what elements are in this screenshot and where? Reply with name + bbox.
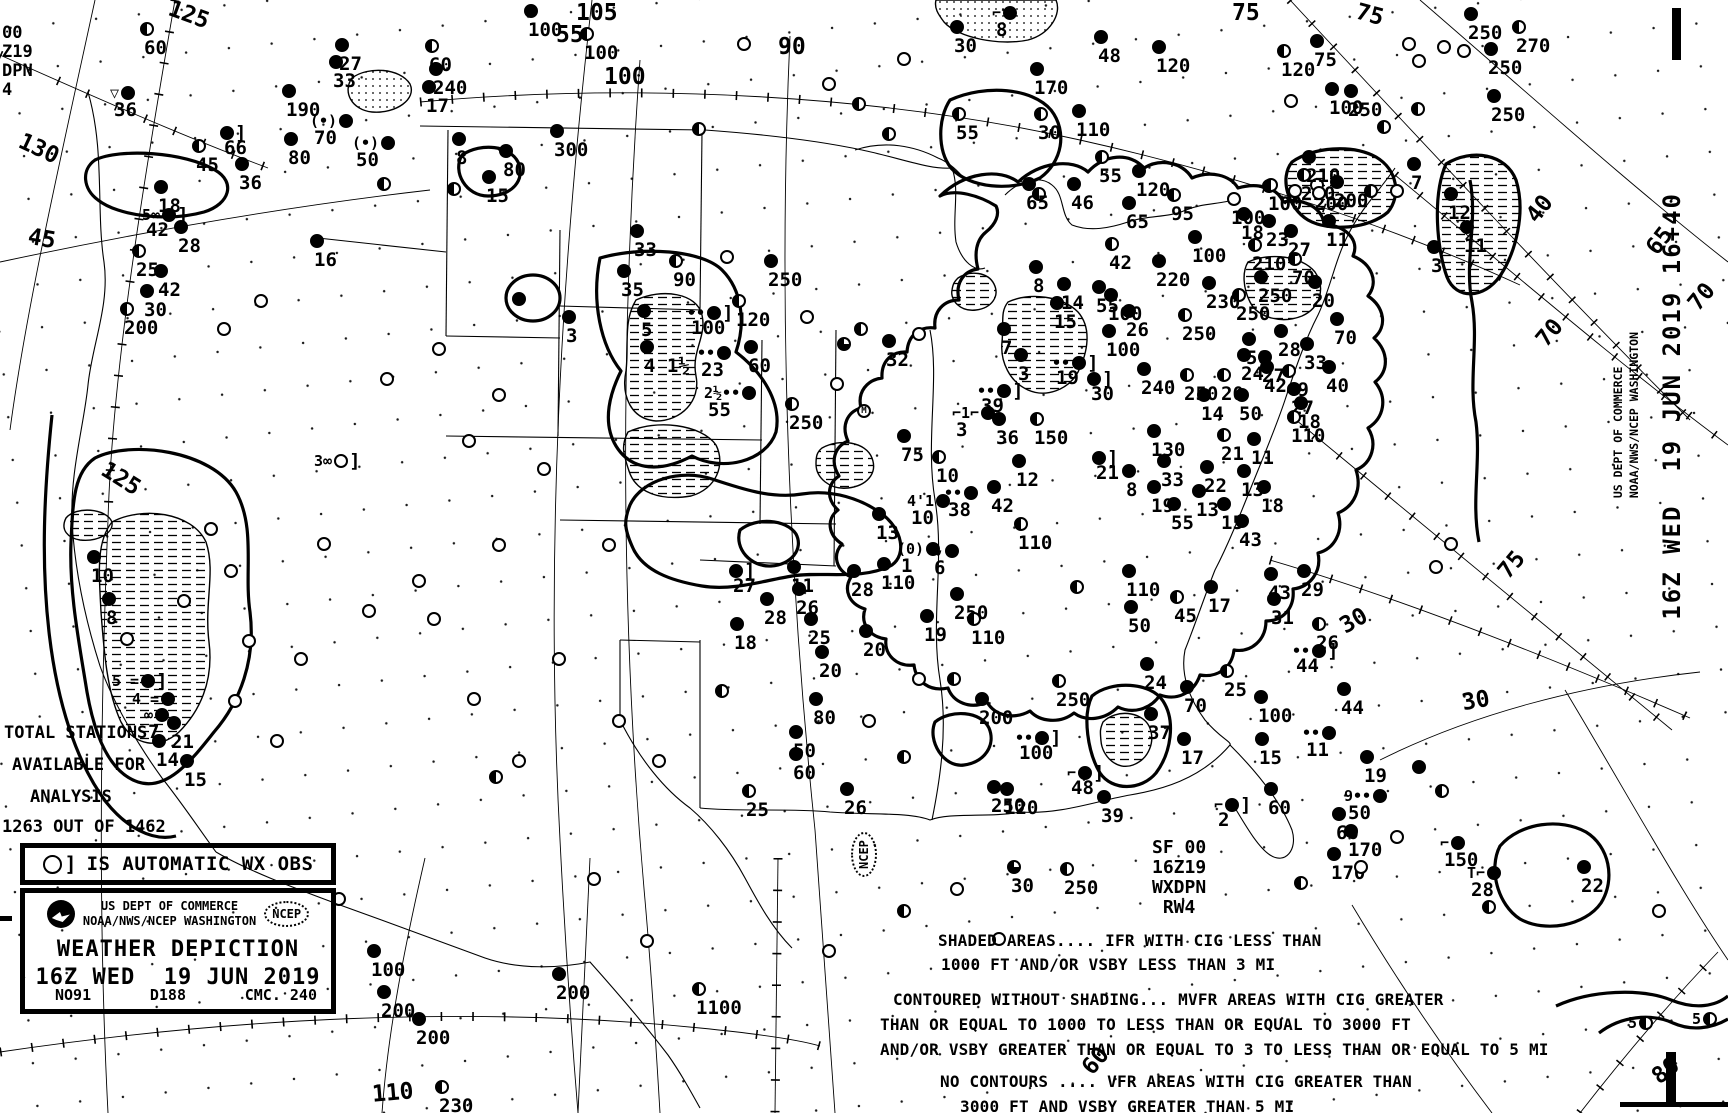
sky-cover-icon — [1124, 600, 1138, 614]
sky-cover-icon — [950, 882, 964, 896]
sky-cover-icon — [1060, 862, 1074, 876]
station-id-block-topleft: 00Z19DPN4 — [2, 24, 33, 100]
station-value: 250 — [1064, 877, 1098, 899]
sky-cover-icon — [492, 388, 506, 402]
sky-cover-icon — [1267, 592, 1281, 606]
sky-cover-icon — [1337, 682, 1351, 696]
station-value: 110 — [1076, 119, 1110, 141]
station-value: 100 — [1192, 245, 1226, 267]
sky-cover-icon — [1147, 424, 1161, 438]
sky-cover-icon — [760, 592, 774, 606]
station-value: 33 — [1161, 469, 1184, 491]
station-value: 200 — [556, 982, 590, 1004]
sky-cover-icon — [217, 322, 231, 336]
station-value: 70 — [1334, 327, 1357, 349]
sky-cover-icon — [427, 612, 441, 626]
station-value: 55 — [1099, 165, 1122, 187]
station-value: 42 — [1264, 375, 1287, 397]
station-value: 1100 — [696, 997, 742, 1019]
station-value: 80 — [813, 707, 836, 729]
sky-cover-icon — [1003, 6, 1017, 20]
sky-cover-icon — [1204, 580, 1218, 594]
station-value: 120 — [1156, 55, 1190, 77]
station-value: 12 — [1016, 469, 1039, 491]
station-value: 15 — [486, 185, 509, 207]
station-value: 2 — [1218, 809, 1229, 831]
station-value: 16 — [314, 249, 337, 271]
sky-cover-icon — [552, 967, 566, 981]
sky-cover-icon — [1308, 275, 1322, 289]
sky-cover-icon — [1451, 836, 1465, 850]
sky-cover-icon — [815, 645, 829, 659]
sky-cover-icon — [1460, 220, 1474, 234]
margin-datetime-vertical: 16Z WED 19 JUN 2019 16+40 — [1658, 192, 1686, 620]
sky-cover-icon — [120, 632, 134, 646]
station-value: 230 — [439, 1095, 473, 1113]
station-value: 7 — [1411, 172, 1422, 194]
graticule-label: 75 — [1232, 0, 1260, 26]
sky-cover-icon — [177, 594, 191, 608]
sky-cover-icon — [652, 754, 666, 768]
station-value: 17 — [1181, 747, 1204, 769]
sky-cover-icon — [412, 574, 426, 588]
station-value: 100 — [584, 42, 618, 64]
station-value: 22 — [1581, 875, 1604, 897]
station-value: 100 — [371, 959, 405, 981]
sky-cover-icon — [1264, 178, 1278, 192]
station-value: 27 — [1288, 239, 1311, 261]
sky-cover-icon — [1412, 54, 1426, 68]
graticule-label: 45 — [26, 224, 58, 254]
sky-cover-icon — [1330, 175, 1344, 189]
sky-cover-icon — [1512, 20, 1526, 34]
sky-cover-icon — [1235, 514, 1249, 528]
sky-cover-icon — [310, 234, 324, 248]
sky-cover-icon — [1177, 732, 1191, 746]
sky-cover-icon — [192, 139, 206, 153]
auto-obs-bracket: ] — [349, 450, 360, 472]
sky-cover-icon — [447, 182, 461, 196]
registration-rule-bottom-right — [1620, 1102, 1728, 1107]
station-value: 100 — [1258, 705, 1292, 727]
station-value: 25 — [746, 799, 769, 821]
noaa-logo — [47, 900, 75, 928]
station-value: 13 — [876, 522, 899, 544]
station-value: 40 — [1326, 375, 1349, 397]
chart-note-line: 3000 FT AND VSBY GREATER THAN 5 MI — [960, 1097, 1294, 1113]
sky-cover-icon — [1095, 150, 1109, 164]
auto-obs-bracket: ] — [1327, 640, 1338, 662]
sky-cover-icon — [837, 337, 851, 351]
sky-cover-icon — [412, 1012, 426, 1026]
sky-cover-icon — [1262, 214, 1276, 228]
sky-cover-icon — [1377, 120, 1391, 134]
station-value: 110 — [1291, 425, 1325, 447]
sky-cover-icon — [669, 254, 683, 268]
sky-cover-icon — [429, 62, 443, 76]
station-value: 15 — [1054, 311, 1077, 333]
sky-cover-icon — [997, 322, 1011, 336]
sky-cover-icon — [637, 304, 651, 318]
sky-cover-icon — [1482, 900, 1496, 914]
weather-symbol: 5 — [1628, 1014, 1637, 1032]
station-value: 28 — [1278, 339, 1301, 361]
sky-cover-icon — [732, 294, 746, 308]
graticule-label: 90 — [778, 34, 806, 60]
station-value: 48 — [1071, 777, 1094, 799]
sky-cover-icon — [1435, 784, 1449, 798]
sky-cover-icon — [717, 346, 731, 360]
sky-cover-icon — [1302, 150, 1316, 164]
station-value: 100 — [1106, 339, 1140, 361]
sky-cover-icon — [1029, 260, 1043, 274]
station-value: 270 — [1516, 35, 1550, 57]
station-value: 100 — [691, 317, 725, 339]
station-value: 90 — [673, 269, 696, 291]
station-value: 100 — [528, 19, 562, 41]
sky-cover-icon — [1072, 104, 1086, 118]
sky-cover-icon — [1487, 89, 1501, 103]
weather-symbol: 5 = — [112, 672, 139, 690]
station-value: 95 — [1171, 203, 1194, 225]
sky-cover-icon — [1287, 410, 1301, 424]
sky-cover-icon — [882, 334, 896, 348]
sky-cover-icon — [1390, 184, 1404, 198]
sky-cover-icon — [967, 612, 981, 626]
station-value: 20 — [1221, 383, 1244, 405]
sky-cover-icon — [1277, 44, 1291, 58]
sky-cover-icon — [947, 672, 961, 686]
footer-left: NO91 — [55, 986, 91, 1004]
sky-cover-icon — [1703, 1012, 1717, 1026]
sky-cover-icon — [692, 122, 706, 136]
chart-title: WEATHER DEPICTION — [25, 937, 331, 962]
station-value: 250 — [1488, 57, 1522, 79]
sky-cover-icon — [692, 982, 706, 996]
sky-cover-icon — [1484, 42, 1498, 56]
station-value: 17 — [426, 95, 449, 117]
sky-cover-icon — [1457, 44, 1471, 58]
station-value: 80 — [288, 147, 311, 169]
sky-cover-icon — [1373, 789, 1387, 803]
sky-cover-icon — [1327, 847, 1341, 861]
station-value: 66 — [224, 137, 247, 159]
sky-cover-icon — [1260, 360, 1274, 374]
station-value: 110 — [1126, 579, 1160, 601]
chart-note-line: THAN OR EQUAL TO 1000 TO LESS THAN OR EQ… — [880, 1015, 1411, 1034]
station-value: 65 — [1026, 192, 1049, 214]
sky-cover-icon — [1237, 348, 1251, 362]
sky-cover-icon — [897, 750, 911, 764]
sky-cover-icon — [1137, 362, 1151, 376]
station-value: 170 — [1034, 77, 1068, 99]
sky-cover-icon — [1325, 82, 1339, 96]
station-value: 19 — [1364, 765, 1387, 787]
sky-cover-icon — [154, 264, 168, 278]
footer-right: CMC. 240 — [245, 986, 317, 1004]
sky-cover-icon — [950, 20, 964, 34]
auto-obs-bracket: ] — [1240, 794, 1251, 816]
station-value: 11 — [1464, 235, 1487, 257]
station-value: 50 — [1128, 615, 1151, 637]
sky-cover-icon — [512, 292, 526, 306]
sky-cover-icon — [1105, 237, 1119, 251]
sky-cover-icon — [897, 429, 911, 443]
sky-cover-icon — [1102, 324, 1116, 338]
sky-cover-icon — [580, 27, 594, 41]
station-value: 3 — [566, 325, 577, 347]
sky-cover-icon — [489, 770, 503, 784]
sky-cover-icon — [1180, 368, 1194, 382]
auto-obs-bracket: ] — [1093, 762, 1104, 784]
sky-cover-icon — [630, 224, 644, 238]
sky-cover-icon — [1147, 480, 1161, 494]
sky-cover-icon — [284, 132, 298, 146]
station-value: 42 — [158, 279, 181, 301]
sky-cover-icon — [381, 136, 395, 150]
station-value: 28 — [178, 235, 201, 257]
station-value: 6 — [934, 557, 945, 579]
sky-cover-icon — [1167, 497, 1181, 511]
sky-cover-icon — [897, 52, 911, 66]
station-value: 46 — [1071, 192, 1094, 214]
station-value: 45 — [196, 154, 219, 176]
sky-cover-icon — [1330, 312, 1344, 326]
title-legend-box: US DEPT OF COMMERCE NOAA/NWS/NCEP WASHIN… — [20, 888, 336, 1014]
sky-cover-icon — [764, 254, 778, 268]
station-value: 19 — [1056, 367, 1079, 389]
station-value: 10 — [911, 507, 934, 529]
chart-note-line: 1000 FT AND/OR VSBY LESS THAN 3 MI — [941, 955, 1275, 974]
sky-cover-icon — [804, 612, 818, 626]
station-value: 3 — [1018, 363, 1029, 385]
station-value: 44 — [1296, 655, 1319, 677]
chart-note-line: SHADED AREAS.... IFR WITH CIG LESS THAN — [938, 931, 1321, 950]
station-value: 28 — [764, 607, 787, 629]
sky-cover-icon — [512, 754, 526, 768]
station-value: 10 — [91, 565, 114, 587]
sky-cover-icon — [1217, 497, 1231, 511]
sky-cover-icon — [1122, 196, 1136, 210]
sky-cover-icon — [830, 377, 844, 391]
station-value: 55 — [708, 399, 731, 421]
sky-cover-icon — [1220, 664, 1234, 678]
station-value: 13 — [1196, 499, 1219, 521]
sky-cover-icon — [932, 450, 946, 464]
sky-cover-icon — [987, 480, 1001, 494]
station-value: 65 — [1126, 211, 1149, 233]
chart-note-line: AND/OR VSBY GREATER THAN OR EQUAL TO 3 T… — [880, 1040, 1549, 1059]
sky-cover-icon — [975, 692, 989, 706]
sky-cover-icon — [789, 747, 803, 761]
sky-cover-icon — [945, 544, 959, 558]
sky-cover-icon — [1287, 382, 1301, 396]
station-value: 80 — [503, 159, 526, 181]
sky-cover-icon — [467, 692, 481, 706]
station-value: 14 — [156, 749, 179, 771]
sky-cover-icon — [964, 486, 978, 500]
station-value: 200 — [381, 1000, 415, 1022]
station-value: 38 — [948, 499, 971, 521]
station-value: 11 — [1251, 447, 1274, 469]
station-value: 15 — [184, 769, 207, 791]
sky-cover-icon — [452, 132, 466, 146]
sky-cover-icon — [1057, 277, 1071, 291]
sky-cover-icon — [1197, 388, 1211, 402]
sky-cover-icon — [882, 127, 896, 141]
station-value: 30 — [954, 35, 977, 57]
sky-cover-icon — [1237, 464, 1251, 478]
sky-cover-icon — [562, 310, 576, 324]
sky-cover-icon — [912, 672, 926, 686]
sky-cover-icon — [1030, 62, 1044, 76]
sky-cover-icon — [224, 564, 238, 578]
sky-cover-icon — [1297, 564, 1311, 578]
station-value: 200 — [979, 707, 1013, 729]
sky-cover-icon — [161, 692, 175, 706]
sky-cover-icon — [1188, 230, 1202, 244]
registration-bar-top-right — [1672, 8, 1681, 60]
sky-cover-icon — [640, 340, 654, 354]
sky-cover-icon — [640, 934, 654, 948]
sky-cover-icon — [334, 454, 348, 468]
sky-cover-icon — [380, 372, 394, 386]
sky-cover-icon — [1217, 368, 1231, 382]
sky-cover-icon — [1140, 657, 1154, 671]
total-stations-line: ANALYSIS — [30, 788, 112, 807]
auto-obs-label: IS AUTOMATIC WX OBS — [87, 853, 314, 875]
sky-cover-icon — [742, 386, 756, 400]
sky-cover-icon — [1232, 288, 1246, 302]
sky-cover-icon — [1364, 184, 1378, 198]
chart-note-line: CONTOURED WITHOUT SHADING... MVFR AREAS … — [893, 990, 1444, 1009]
weather-symbol: 5 — [1692, 1010, 1701, 1028]
sky-cover-icon — [1167, 188, 1181, 202]
station-value: 8 — [456, 147, 467, 169]
sky-cover-icon — [254, 294, 268, 308]
sky-cover-icon — [1332, 807, 1346, 821]
sky-cover-icon — [730, 617, 744, 631]
sky-cover-icon — [587, 872, 601, 886]
station-value: 36 — [239, 172, 262, 194]
station-value: 250 — [1182, 323, 1216, 345]
station-value: 29 — [1301, 579, 1324, 601]
station-value: 55 — [1171, 512, 1194, 534]
sky-cover-icon — [1152, 254, 1166, 268]
sky-cover-icon — [950, 587, 964, 601]
sky-cover-icon — [1227, 192, 1241, 206]
sky-cover-icon — [1444, 187, 1458, 201]
weather-depiction-chart: 00Z19DPN4 SF 0016Z19WXDPNRW4 TOTAL STATI… — [0, 0, 1728, 1113]
sky-cover-icon — [800, 310, 814, 324]
sky-cover-icon — [121, 86, 135, 100]
sky-cover-icon — [1217, 428, 1231, 442]
sky-cover-icon — [1264, 567, 1278, 581]
sky-cover-icon — [132, 244, 146, 258]
sky-cover-icon — [1429, 560, 1443, 574]
station-value: 150 — [1034, 427, 1068, 449]
graticule-label: 30 — [1460, 686, 1492, 716]
sky-cover-icon — [482, 170, 496, 184]
sky-cover-icon — [425, 39, 439, 53]
station-value: 3 — [1431, 255, 1442, 277]
sky-cover-icon — [720, 250, 734, 264]
station-value: 240 — [1141, 377, 1175, 399]
bracket-glyph: ] — [65, 852, 77, 876]
total-stations-line: AVAILABLE FOR — [12, 756, 145, 775]
sky-cover-icon — [912, 327, 926, 341]
sky-cover-icon — [1052, 674, 1066, 688]
sky-cover-icon — [140, 284, 154, 298]
station-value: 20 — [819, 660, 842, 682]
sky-cover-icon — [1427, 240, 1441, 254]
sky-cover-icon — [1412, 760, 1426, 774]
station-value: 50 — [356, 149, 379, 171]
sky-cover-icon — [1322, 726, 1336, 740]
station-value: 32 — [886, 349, 909, 371]
station-value: 110 — [881, 572, 915, 594]
station-value: 43 — [1239, 529, 1262, 551]
sky-cover-icon — [1344, 84, 1358, 98]
margin-ncep-logo: NCEP — [851, 0, 877, 877]
station-value: 31 — [1271, 607, 1294, 629]
sky-cover-icon — [1094, 30, 1108, 44]
sky-cover-icon — [377, 177, 391, 191]
sky-cover-icon — [1464, 7, 1478, 21]
station-value: 50 — [1348, 802, 1371, 824]
sky-cover-icon — [1639, 1016, 1653, 1030]
sky-cover-icon — [1034, 107, 1048, 121]
station-value: 7 — [1001, 337, 1012, 359]
sky-cover-icon — [339, 114, 353, 128]
sky-cover-icon — [1322, 214, 1336, 228]
sky-cover-icon — [1255, 732, 1269, 746]
sky-cover-icon — [744, 340, 758, 354]
station-value: 30 — [1011, 875, 1034, 897]
sky-cover-icon — [1360, 750, 1374, 764]
sky-cover-icon — [617, 264, 631, 278]
sky-cover-icon — [1067, 177, 1081, 191]
sky-cover-icon — [1247, 432, 1261, 446]
sky-cover-icon — [1437, 40, 1451, 54]
station-value: 19 — [924, 624, 947, 646]
sky-cover-icon — [1132, 164, 1146, 178]
margin-agency-vertical: US DEPT OF COMMERCE NOAA/NWS/NCEP WASHIN… — [1594, 332, 1658, 526]
sky-cover-icon — [1152, 40, 1166, 54]
sky-cover-icon — [787, 560, 801, 574]
sky-cover-icon — [981, 406, 995, 420]
station-value: 200 — [124, 317, 158, 339]
sky-cover-icon — [329, 55, 343, 69]
station-value: 22 — [1204, 475, 1227, 497]
sky-cover-icon — [270, 734, 284, 748]
sky-cover-icon — [317, 537, 331, 551]
sky-cover-icon — [1200, 460, 1214, 474]
sky-cover-icon — [789, 725, 803, 739]
sky-cover-icon — [367, 944, 381, 958]
sky-cover-icon — [1192, 484, 1206, 498]
sky-cover-icon — [154, 180, 168, 194]
station-value: 120 — [1136, 179, 1170, 201]
station-value: 44 — [1341, 697, 1364, 719]
station-value: 100 — [1019, 742, 1053, 764]
station-value: 170 — [1348, 839, 1382, 861]
station-value: 300 — [554, 139, 588, 161]
graticule-label: 100 — [604, 64, 646, 90]
sky-cover-icon — [499, 144, 513, 158]
sky-cover-icon — [742, 784, 756, 798]
station-value: 75 — [1314, 49, 1337, 71]
